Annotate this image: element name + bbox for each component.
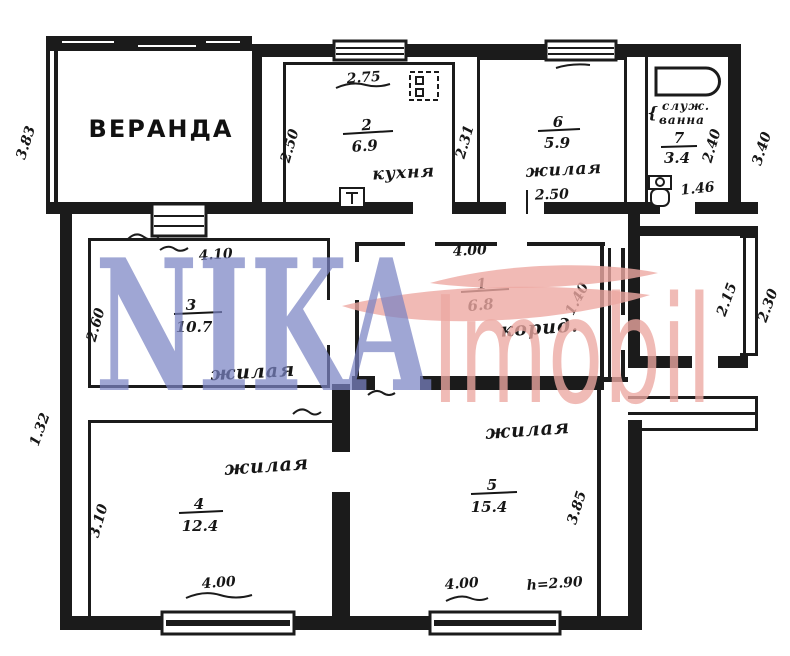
wall-segment xyxy=(740,235,758,238)
room-name: жилая xyxy=(223,452,309,480)
room-area: 5.9 xyxy=(544,134,571,152)
dim-room6-bottom: 2.50 xyxy=(534,186,570,203)
fixtures xyxy=(340,68,720,207)
brace-mark: { xyxy=(647,103,658,122)
room-name-line1: служ. xyxy=(662,99,710,113)
wall-segment xyxy=(252,44,262,214)
room-number: 6 xyxy=(553,113,564,131)
wall-segment xyxy=(645,57,648,214)
window-line xyxy=(755,238,758,356)
floor-plan: ВЕРАНДА 2 6.9 кухня 6 5.9 жилая служ. ва… xyxy=(0,0,790,656)
window xyxy=(430,612,560,634)
floor-plan-drawing: ВЕРАНДА 2 6.9 кухня 6 5.9 жилая служ. ва… xyxy=(0,0,790,656)
dim-room4-bottom: 4.00 xyxy=(201,574,236,592)
room-kitchen-label: 2 6.9 кухня xyxy=(343,116,436,185)
dim-kitchen-top: 2.75 xyxy=(345,69,381,87)
dim-porch-inner: 2.15 xyxy=(714,281,741,319)
wall-segment xyxy=(527,242,605,246)
room-name: кухня xyxy=(372,161,436,184)
wall-segment xyxy=(628,420,642,630)
dim-underline xyxy=(186,593,252,598)
wall-segment xyxy=(624,57,627,214)
door-opening xyxy=(413,202,452,214)
room-living6-label: 6 5.9 жилая xyxy=(525,113,602,182)
dim-underline xyxy=(446,597,488,601)
dim-room5-right: 3.85 xyxy=(564,489,590,526)
glazing-dash xyxy=(206,41,240,43)
veranda-label: ВЕРАНДА xyxy=(89,115,234,143)
room-living4-label: 4 12.4 жилая xyxy=(179,452,310,535)
dim-room5-bottom: 4.00 xyxy=(444,575,479,593)
wall-segment xyxy=(283,62,455,65)
wall-segment xyxy=(252,44,740,57)
watermark: NIKA Imobil xyxy=(95,219,712,437)
bathtub-icon xyxy=(656,68,720,95)
wall-segment xyxy=(88,420,91,616)
dim-outer-left-bottom: 1.32 xyxy=(27,411,54,449)
dim-ceiling-height: h=2.90 xyxy=(526,574,583,594)
wall-segment xyxy=(477,57,480,214)
window xyxy=(546,41,616,60)
squiggle xyxy=(556,64,590,68)
wall-segment xyxy=(740,353,758,356)
glazing-dash xyxy=(138,45,196,47)
toilet-icon xyxy=(649,176,671,206)
dim-porch-outer: 2.30 xyxy=(755,287,782,326)
window-line xyxy=(743,238,746,356)
room-area: 15.4 xyxy=(471,498,508,516)
room-number: 7 xyxy=(674,129,685,147)
dim-bath-bottom: 1.46 xyxy=(680,179,716,199)
wall-segment xyxy=(60,202,72,630)
wall-segment xyxy=(728,44,741,214)
veranda-window-band xyxy=(46,36,252,51)
wall-segment xyxy=(640,226,758,236)
fraction-line xyxy=(179,511,223,513)
window xyxy=(334,41,406,60)
room-number: 4 xyxy=(194,495,204,513)
stove-icon xyxy=(410,72,438,100)
wall-segment xyxy=(452,62,455,214)
fraction-line xyxy=(661,146,697,147)
dim-bath-right: 2.40 xyxy=(699,127,724,165)
watermark-secondary-text: Imobil xyxy=(432,265,712,437)
dim-veranda-left: 3.83 xyxy=(13,124,39,162)
room-area: 12.4 xyxy=(182,517,219,535)
fraction-line xyxy=(538,129,580,131)
dim-kitchen-left: 2.50 xyxy=(277,127,302,165)
room-name-line2: ванна xyxy=(659,113,705,127)
glazing-dash xyxy=(62,41,114,43)
fraction-line xyxy=(471,492,517,494)
wall-segment xyxy=(46,36,50,204)
room-area: 3.4 xyxy=(664,149,690,167)
door-opening xyxy=(506,202,544,214)
room-number: 5 xyxy=(487,476,497,494)
room-area: 6.9 xyxy=(351,136,379,156)
wall-segment xyxy=(718,356,748,368)
watermark-primary-text: NIKA xyxy=(95,219,432,433)
wall-segment xyxy=(54,36,58,204)
dim-room6-left: 2.31 xyxy=(452,123,477,161)
window xyxy=(162,612,294,634)
wall-segment xyxy=(332,492,350,616)
flue-icon xyxy=(340,188,364,207)
dim-corridor-top: 4.00 xyxy=(452,242,487,260)
room-name: жилая xyxy=(525,158,602,182)
dim-outer-right-top: 3.40 xyxy=(749,130,775,168)
